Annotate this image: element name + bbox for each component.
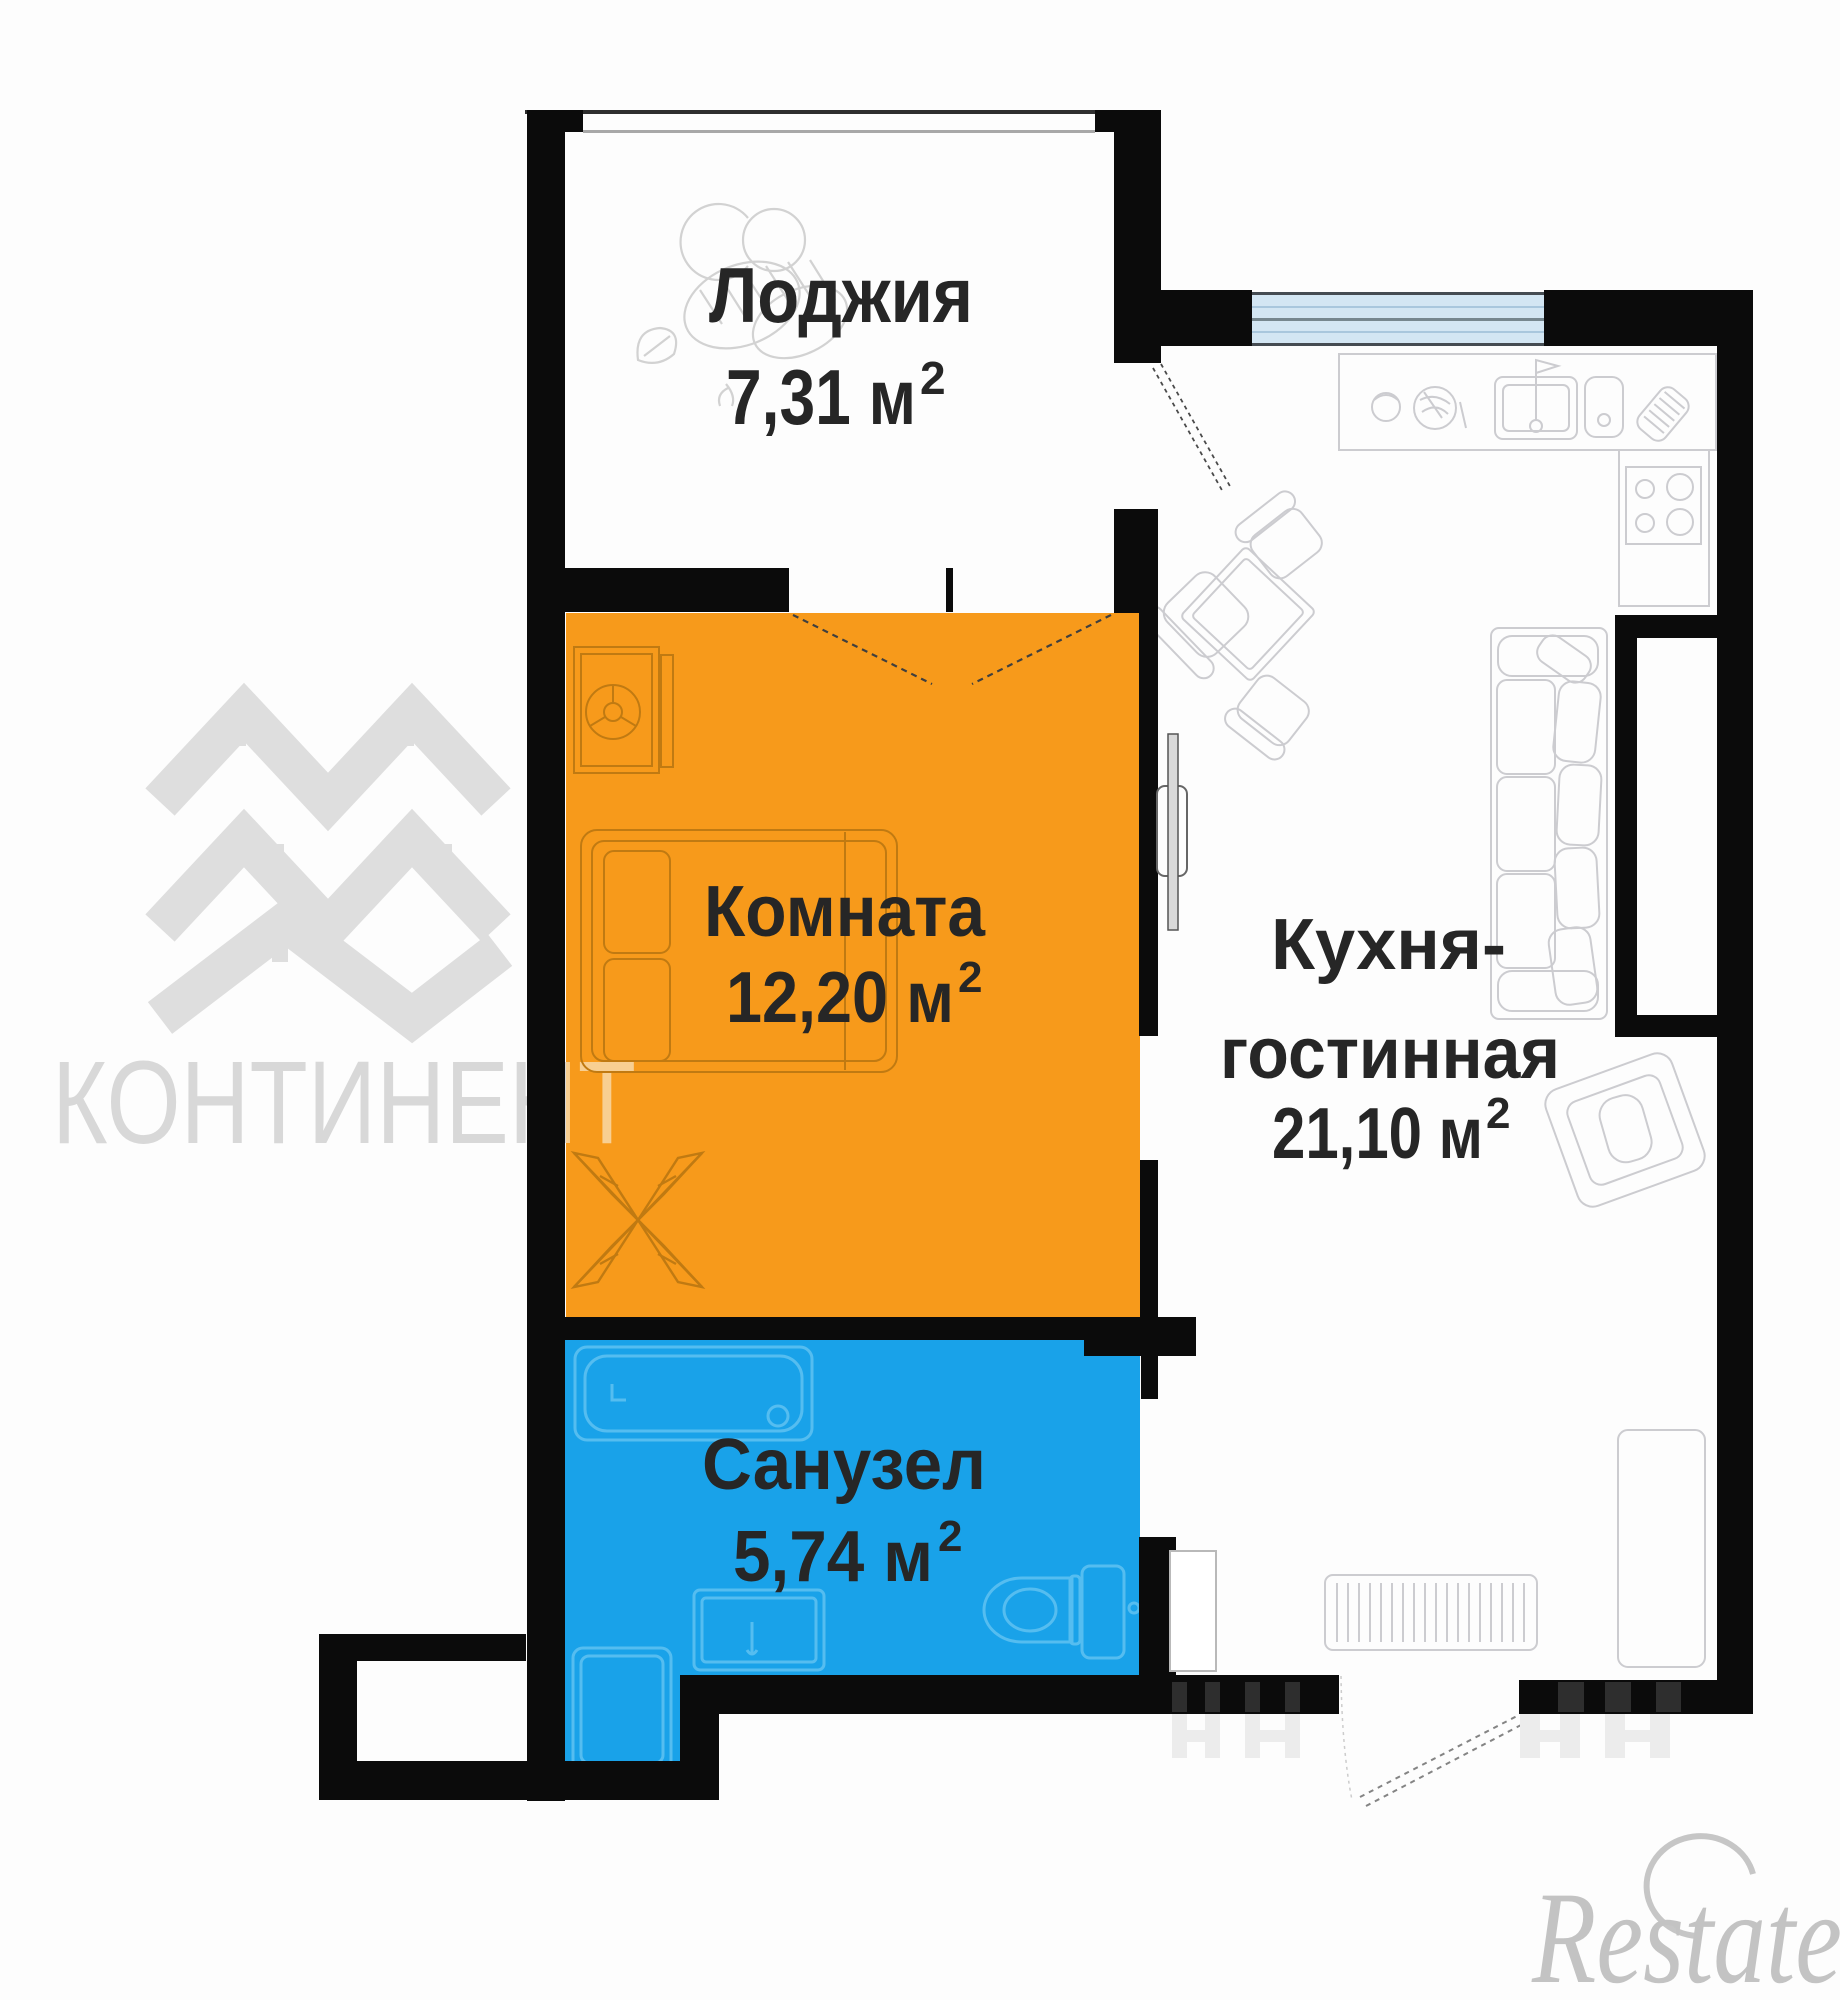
svg-text:Restate: Restate [1531,1864,1840,2000]
svg-text:2: 2 [920,352,946,404]
svg-text:12,20 м: 12,20 м [726,958,954,1038]
svg-text:Лоджия: Лоджия [709,251,973,339]
svg-text:2: 2 [1486,1089,1510,1138]
svg-text:2: 2 [958,953,982,1002]
svg-text:гостинная: гостинная [1220,1014,1560,1094]
svg-text:7,31 м: 7,31 м [726,353,916,441]
svg-text:Кухня-: Кухня- [1271,905,1506,985]
svg-text:Комната: Комната [704,872,986,952]
svg-text:Санузел: Санузел [702,1425,986,1505]
svg-text:2: 2 [938,1512,962,1561]
svg-text:21,10 м: 21,10 м [1272,1094,1483,1174]
svg-text:5,74 м: 5,74 м [733,1517,933,1597]
